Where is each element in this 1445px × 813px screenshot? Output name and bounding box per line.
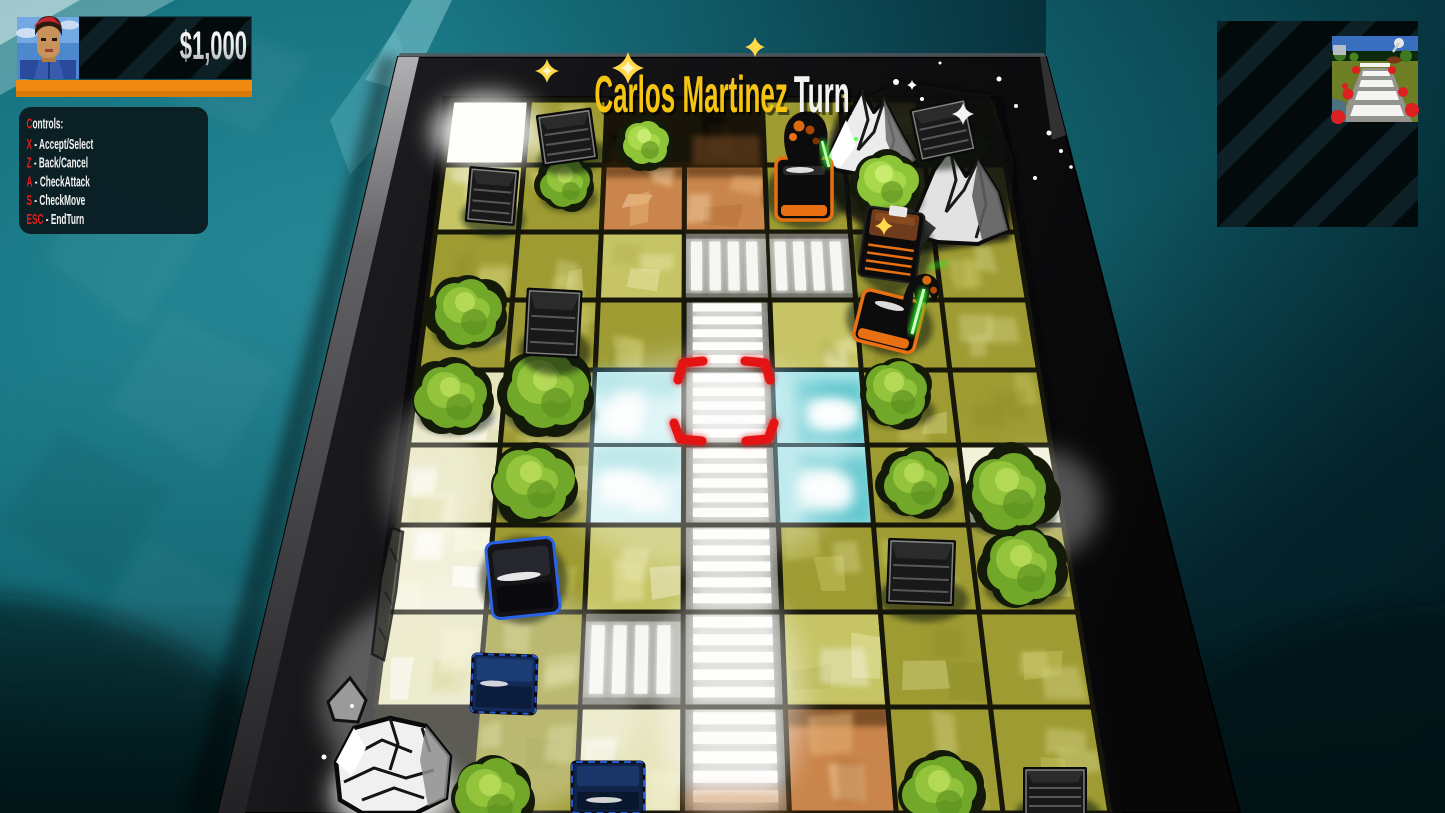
svg-text:Z - Back/Cancel: Z - Back/Cancel	[27, 154, 89, 171]
svg-text:Carlos MartinezTurn: Carlos MartinezTurn	[594, 65, 849, 123]
svg-text:$1,000: $1,000	[180, 23, 247, 68]
svg-text:X - Accept/Select: X - Accept/Select	[27, 135, 94, 152]
svg-text:S - CheckMove: S - CheckMove	[27, 191, 86, 208]
svg-text:A - CheckAttack: A - CheckAttack	[27, 173, 91, 190]
svg-text:ESC - EndTurn: ESC - EndTurn	[27, 210, 85, 227]
svg-text:Controls:: Controls:	[27, 115, 64, 132]
